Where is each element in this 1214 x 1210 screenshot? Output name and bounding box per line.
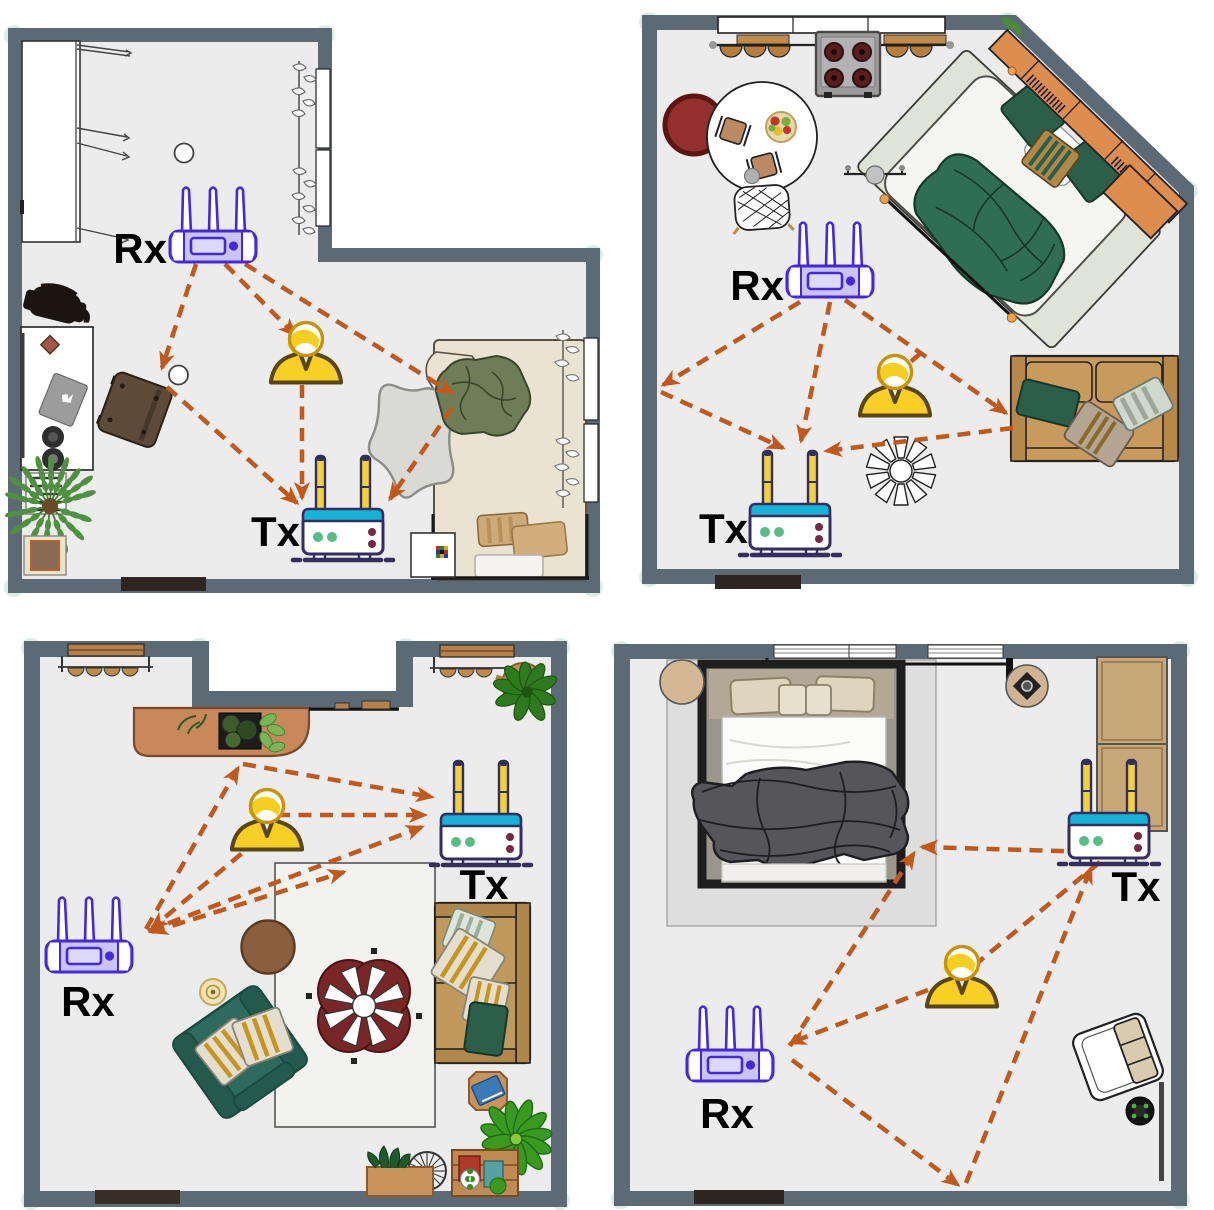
- svg-text:Tx: Tx: [459, 861, 509, 908]
- svg-text:Tx: Tx: [1111, 863, 1161, 910]
- svg-text:Rx: Rx: [730, 262, 784, 309]
- svg-text:Tx: Tx: [699, 505, 749, 552]
- svg-text:Rx: Rx: [61, 978, 115, 1025]
- svg-text:Tx: Tx: [251, 508, 301, 555]
- svg-text:Rx: Rx: [113, 225, 167, 272]
- svg-text:Rx: Rx: [700, 1090, 754, 1137]
